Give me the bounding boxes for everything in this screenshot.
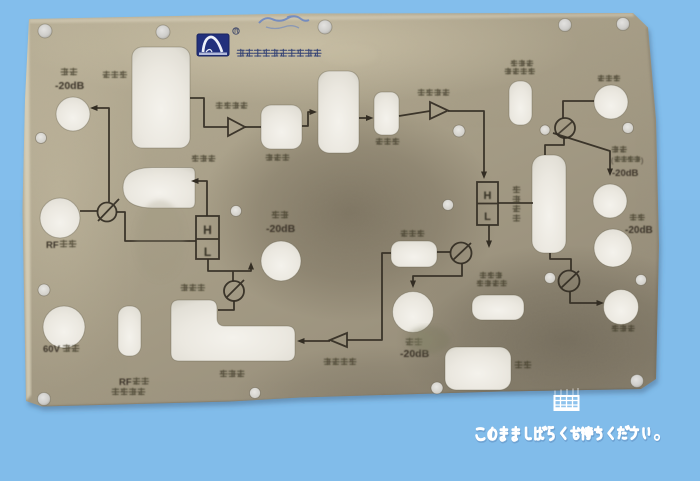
svg-text:H: H (484, 190, 492, 202)
svg-text:L: L (204, 245, 211, 259)
svg-text:L: L (484, 211, 491, 223)
svg-text:H: H (203, 223, 212, 237)
svg-text:60V: 60V (43, 344, 61, 355)
svg-text:-20dB: -20dB (55, 80, 85, 92)
svg-text:RF: RF (46, 240, 59, 251)
svg-text:-20dB: -20dB (625, 225, 653, 236)
svg-text:-20dB: -20dB (266, 223, 296, 235)
svg-text:RF: RF (119, 377, 132, 388)
svg-text:): ) (641, 158, 643, 165)
svg-text:-20dB: -20dB (612, 168, 639, 179)
